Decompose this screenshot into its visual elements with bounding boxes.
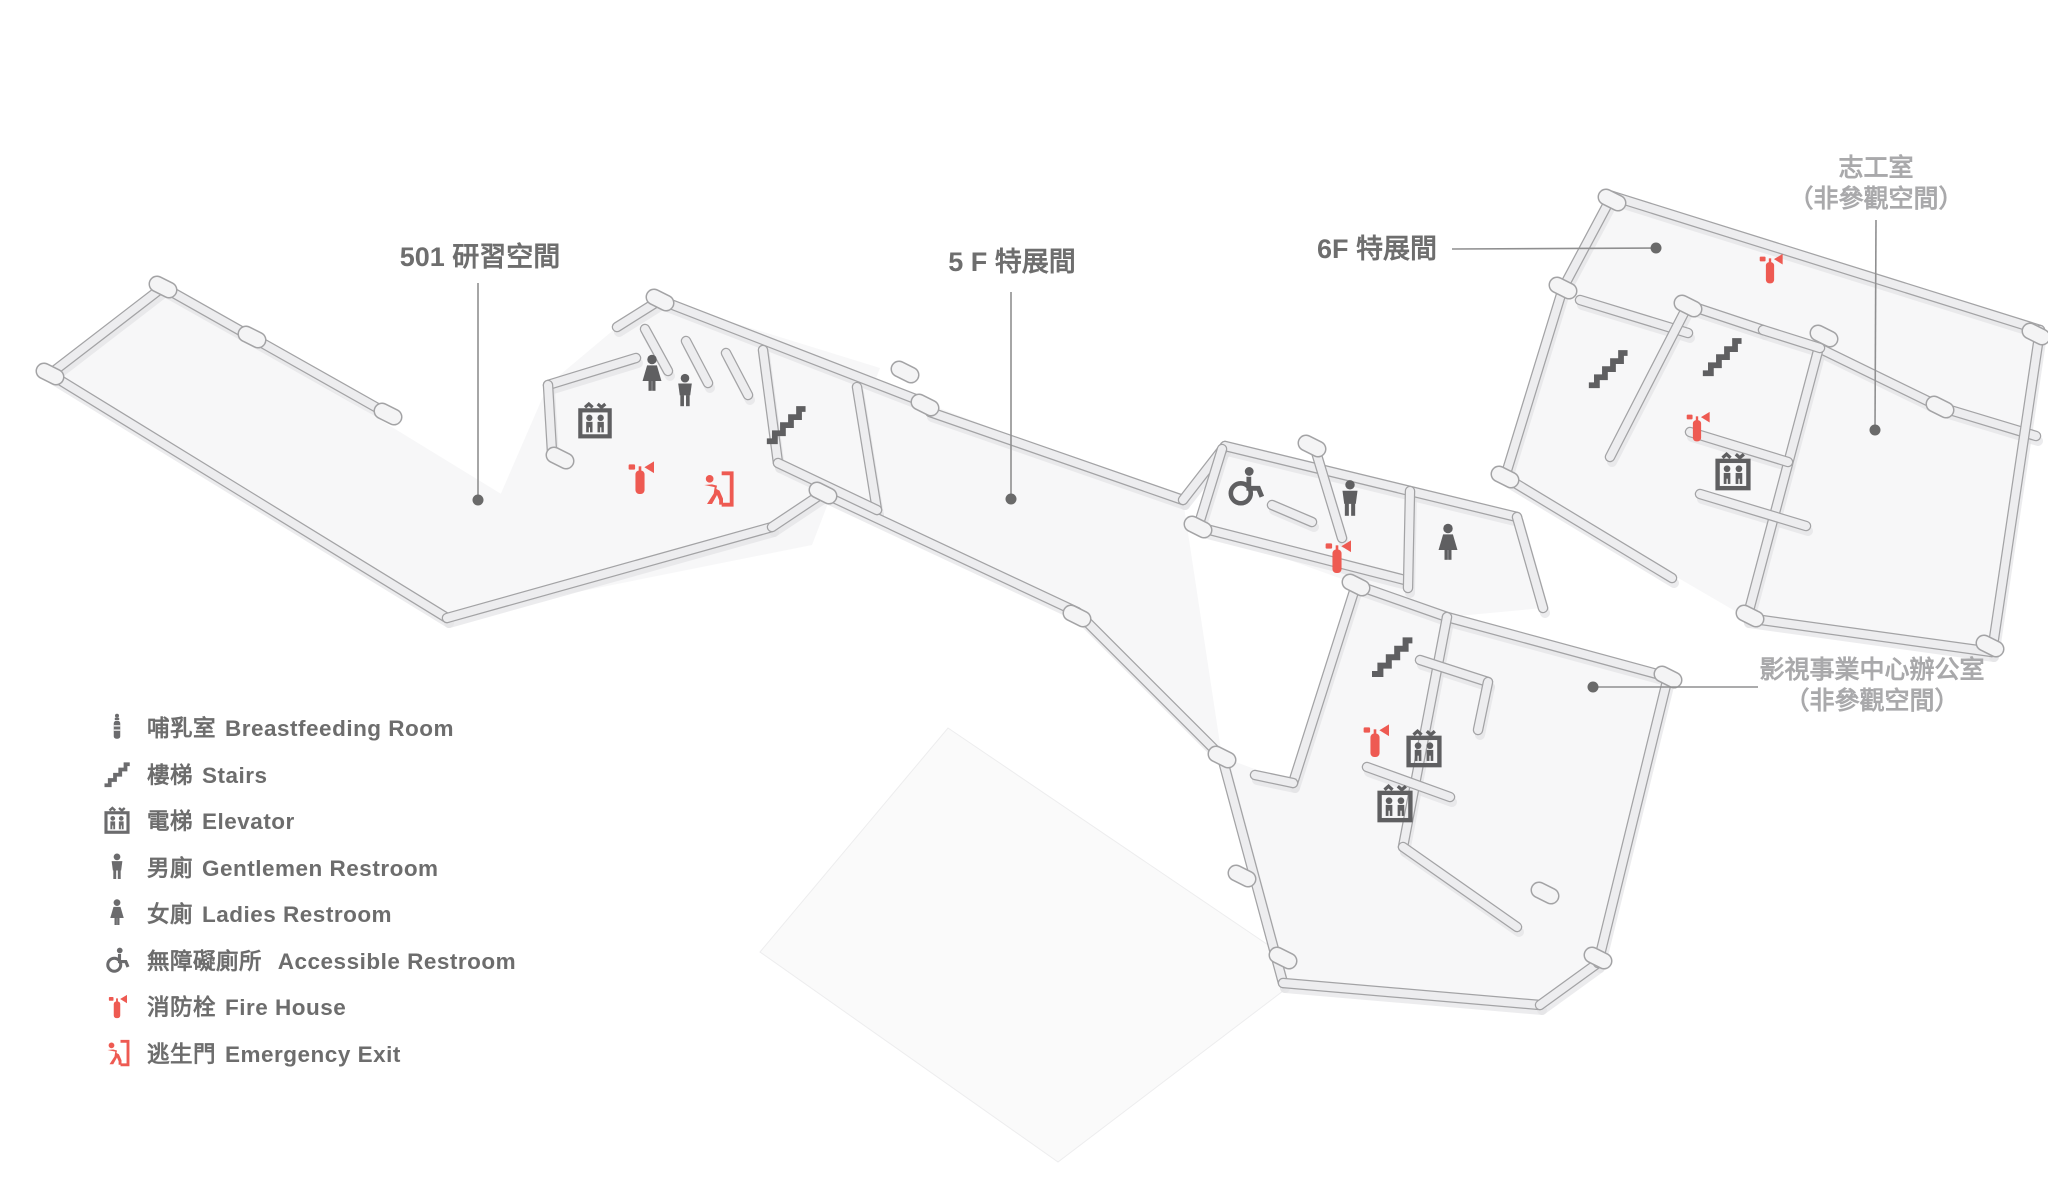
leader-dot xyxy=(473,495,484,506)
legend-item-gentlemen: 男廁Gentlemen Restroom xyxy=(100,844,516,891)
legend: 哺乳室Breastfeeding Room 樓梯Stairs 電梯Elevato… xyxy=(100,704,516,1076)
area-label-5f: 5 F 特展間 xyxy=(948,247,1076,277)
area-label-6f: 6F 特展間 xyxy=(1317,234,1437,264)
legend-item-ladies: 女廁Ladies Restroom xyxy=(100,890,516,937)
area-label-volunteer-room: 志工室（非參觀空間） xyxy=(1788,153,1963,213)
leader-dot xyxy=(1006,494,1017,505)
legend-label-en: Ladies Restroom xyxy=(202,902,392,927)
ladies-icon xyxy=(100,896,134,930)
leader-line xyxy=(1452,248,1656,249)
legend-label-zh: 消防栓 xyxy=(147,995,216,1020)
gentlemen-icon xyxy=(100,850,134,884)
legend-label-en: Gentlemen Restroom xyxy=(202,856,439,881)
fire-extinguisher-icon xyxy=(100,989,134,1023)
legend-item-breastfeeding: 哺乳室Breastfeeding Room xyxy=(100,704,516,751)
area-label-film-office: 影視事業中心辦公室（非參觀空間） xyxy=(1759,655,1984,715)
leader-dot xyxy=(1870,425,1881,436)
leader-line xyxy=(1875,220,1876,430)
floor-plan-page: 501 研習空間5 F 特展間6F 特展間志工室（非參觀空間）影視事業中心辦公室… xyxy=(0,0,2048,1188)
legend-item-emergency-exit: 逃生門Emergency Exit xyxy=(100,1030,516,1077)
legend-label-zh: 電梯 xyxy=(147,809,193,834)
leader-dot xyxy=(1588,682,1599,693)
legend-label-zh: 逃生門 xyxy=(147,1042,216,1067)
legend-item-fire-extinguisher: 消防栓Fire House xyxy=(100,983,516,1030)
breastfeeding-icon xyxy=(100,710,134,744)
legend-label-zh: 無障礙廁所 xyxy=(147,949,262,974)
legend-label-zh: 哺乳室 xyxy=(147,716,216,741)
legend-item-stairs: 樓梯Stairs xyxy=(100,751,516,798)
legend-label-en: Stairs xyxy=(202,763,268,788)
legend-label-zh: 男廁 xyxy=(147,856,193,881)
legend-label-en: Accessible Restroom xyxy=(271,949,516,974)
stairs-icon xyxy=(100,757,134,791)
legend-label-en: Emergency Exit xyxy=(225,1042,401,1067)
area-label-501: 501 研習空間 xyxy=(400,241,561,272)
floor-lower-slab xyxy=(760,728,1308,1162)
elevator-icon xyxy=(100,803,134,837)
legend-label-en: Fire House xyxy=(225,995,346,1020)
emergency-exit-icon xyxy=(100,1036,134,1070)
legend-label-zh: 女廁 xyxy=(147,902,193,927)
floor-central-hall xyxy=(620,300,1222,757)
legend-label-en: Elevator xyxy=(202,809,295,834)
accessible-icon xyxy=(100,943,134,977)
leader-dot xyxy=(1651,243,1662,254)
legend-label-en: Breastfeeding Room xyxy=(225,716,454,741)
legend-label-zh: 樓梯 xyxy=(147,763,193,788)
legend-item-elevator: 電梯Elevator xyxy=(100,797,516,844)
legend-item-accessible: 無障礙廁所 Accessible Restroom xyxy=(100,937,516,984)
